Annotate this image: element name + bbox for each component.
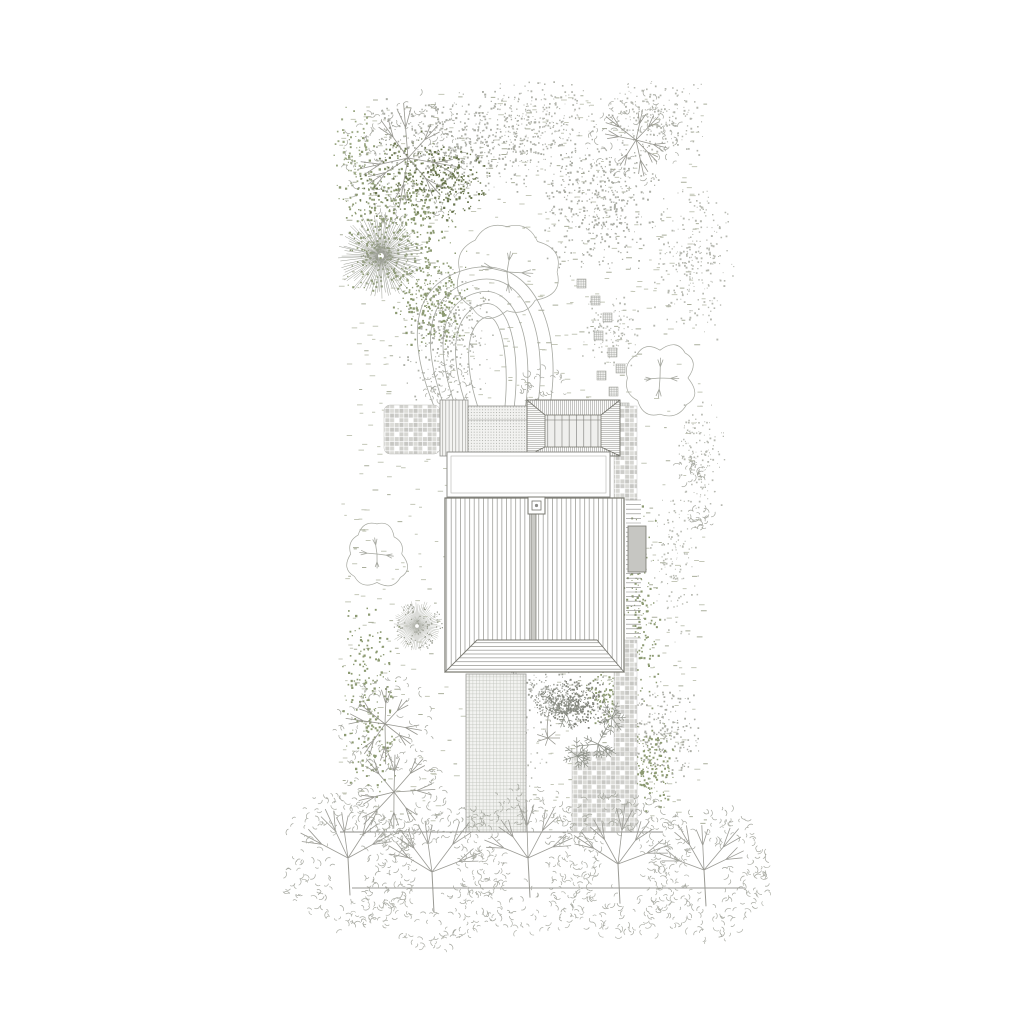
- chimney-flue: [535, 504, 538, 507]
- street-tree: [283, 788, 415, 933]
- roof-ridge: [531, 498, 536, 640]
- tree-shrub: [688, 506, 715, 531]
- tree-branches: [660, 825, 744, 870]
- tree-trunk: [528, 858, 530, 898]
- courtyard: [447, 452, 610, 497]
- flower-stem: [547, 712, 549, 738]
- tree-branches: [359, 538, 393, 569]
- vegetation-speckles: [399, 269, 494, 401]
- tree-branches: [359, 755, 436, 829]
- winding-path-line: [456, 304, 517, 416]
- vegetation-speckles: [650, 500, 699, 643]
- tree-canopy: [640, 805, 769, 937]
- tree-branchy: [585, 90, 682, 186]
- conifer-needles: [394, 601, 442, 650]
- tree-trunk: [618, 864, 620, 904]
- tree-trunk: [348, 858, 350, 895]
- vegetation-speckles: [544, 137, 662, 276]
- stepping-stone: [591, 296, 600, 305]
- tree-canopy: [585, 90, 682, 186]
- stepping-stone: [597, 371, 606, 380]
- vegetation-speckles: [358, 131, 459, 224]
- flower-head: [533, 686, 565, 717]
- leaf-rosette: [537, 730, 560, 746]
- garden-path: [466, 674, 526, 832]
- vegetation-speckles: [358, 91, 580, 195]
- drawing-canvas: [0, 0, 1024, 1024]
- tree-branches: [644, 358, 679, 398]
- street-tree: [640, 805, 770, 944]
- tree-lobed: [347, 523, 408, 586]
- tree-trunk: [432, 872, 434, 913]
- tree-dotcone: [394, 601, 443, 650]
- plank-deck: [440, 400, 468, 456]
- stepping-stone: [609, 387, 618, 396]
- stepping-stone: [616, 364, 625, 373]
- vegetation-speckles: [678, 402, 725, 515]
- dotted-deck: [468, 406, 527, 453]
- stepping-stone: [608, 348, 617, 357]
- shrub-foliage: [688, 506, 715, 531]
- site-plan-drawing: [0, 0, 1024, 1024]
- layer-buildings: [384, 400, 646, 832]
- terrace-mosaic: [384, 405, 440, 454]
- vegetation-speckles: [334, 107, 373, 204]
- stepping-stone: [594, 331, 603, 340]
- tree-branches: [301, 809, 393, 858]
- tree-canopy: [333, 677, 433, 772]
- stepping-stone: [603, 313, 612, 322]
- tree-dandelion: [533, 686, 565, 745]
- stepping-stone: [577, 279, 586, 288]
- tree-branches: [481, 251, 533, 293]
- stair-landing: [628, 526, 646, 572]
- annex-hipped-roof: [527, 400, 620, 456]
- layer-stepping-stones: [577, 279, 629, 412]
- main-roof: [445, 497, 624, 672]
- vegetation-speckles: [414, 146, 490, 221]
- layer-street-trees: [283, 784, 771, 952]
- winding-path-line: [469, 317, 506, 416]
- tree-branchy: [333, 677, 433, 772]
- porch-roof: [445, 640, 624, 672]
